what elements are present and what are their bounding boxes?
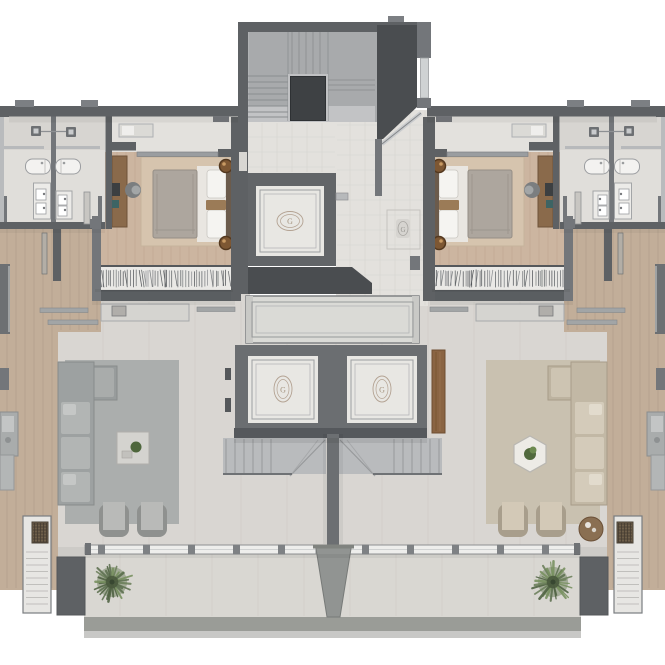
- svg-text:G: G: [400, 226, 405, 234]
- svg-text:G: G: [379, 386, 385, 395]
- svg-text:G: G: [287, 217, 293, 226]
- svg-text:G: G: [280, 386, 286, 395]
